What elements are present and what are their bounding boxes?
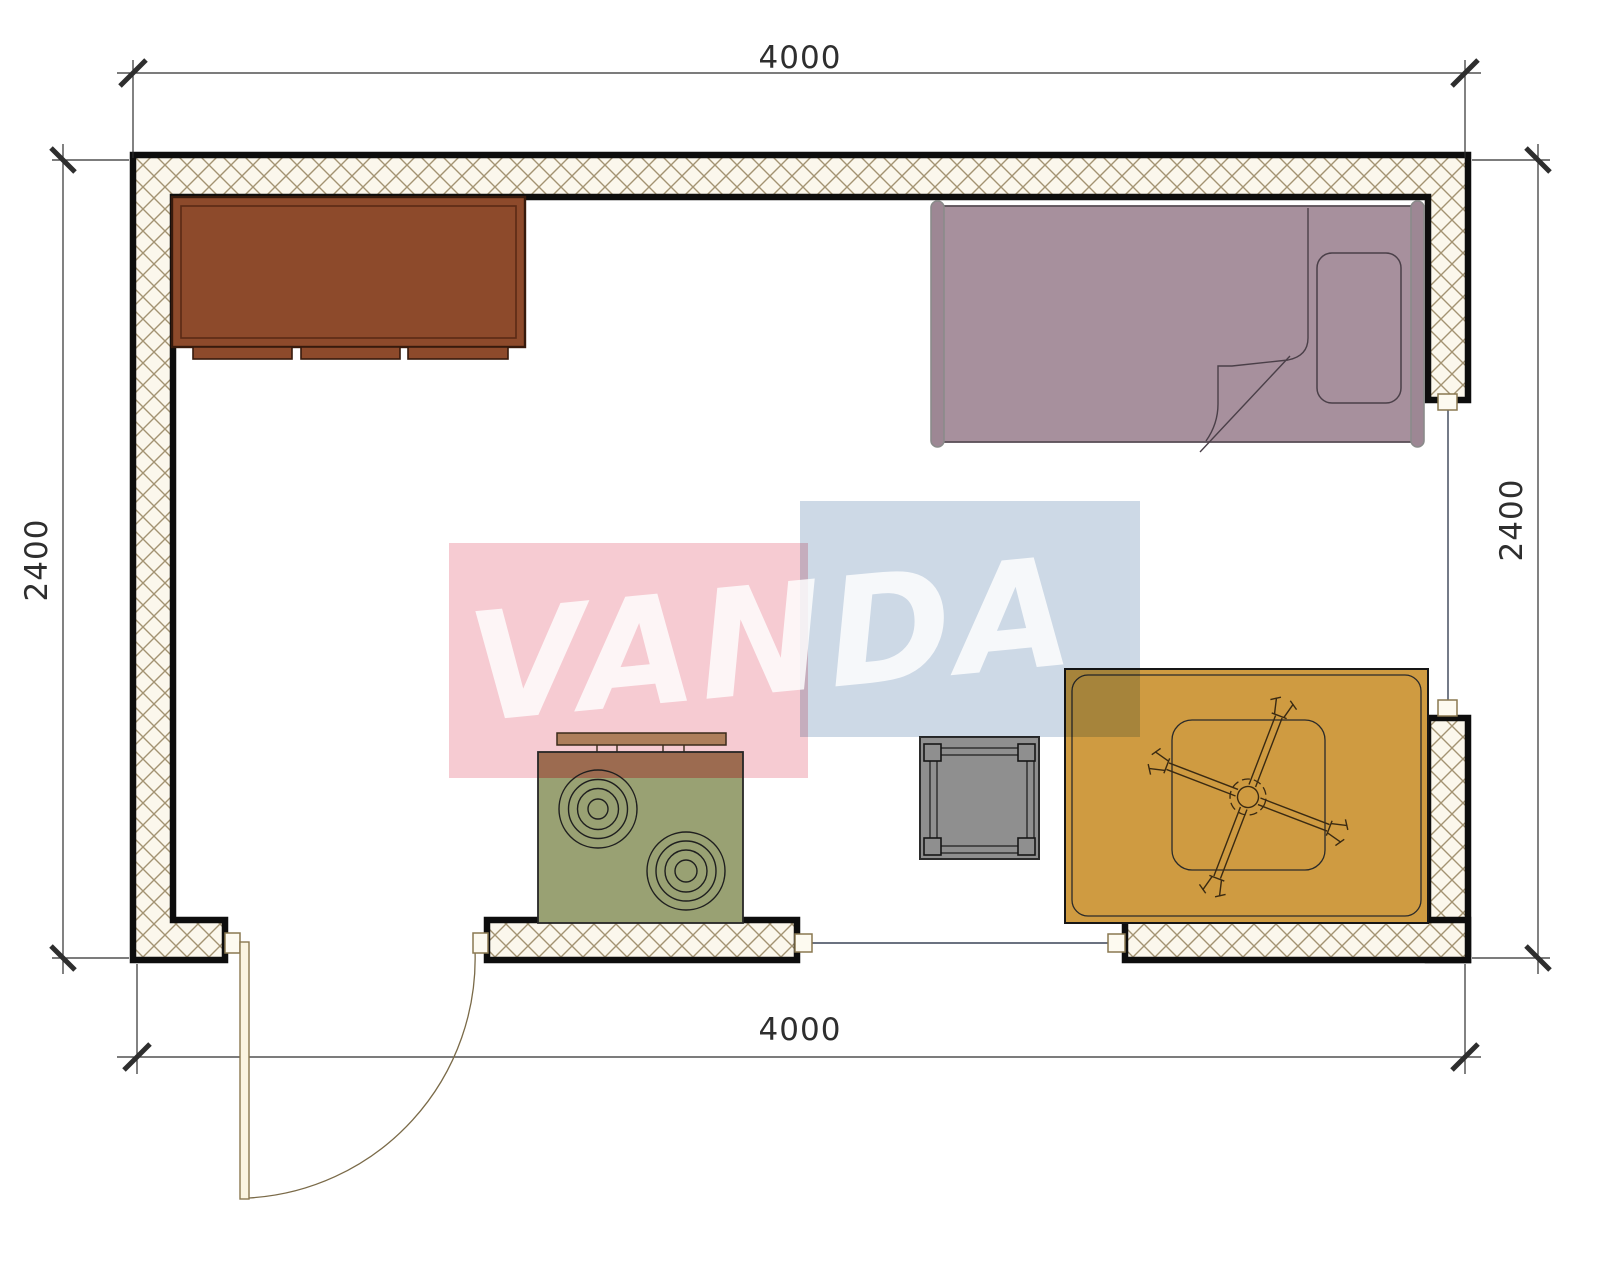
stove-control-band	[538, 752, 743, 778]
dimension-right: 2400	[1472, 144, 1550, 974]
bed-post-left	[931, 201, 944, 447]
door	[225, 933, 488, 1199]
bed-post-right	[1411, 201, 1424, 447]
door-frame-jamb	[225, 933, 240, 953]
wardrobe-door-tab	[301, 347, 400, 359]
wardrobe	[172, 197, 525, 359]
dim-label-top: 4000	[759, 40, 842, 76]
side-table	[920, 737, 1039, 859]
dim-label-left: 2400	[19, 519, 55, 602]
door-frame-jamb	[473, 933, 488, 953]
window-bottom	[795, 934, 1125, 952]
wall-bottom-center	[487, 920, 797, 960]
dimension-bottom: 4000	[117, 964, 1481, 1074]
door-swing-arc	[249, 950, 475, 1198]
wardrobe-body	[172, 197, 525, 347]
wardrobe-door-tab	[193, 347, 292, 359]
window-right	[1438, 394, 1457, 716]
dimension-top: 4000	[117, 40, 1481, 158]
window-frame-cap	[1438, 700, 1457, 716]
side-table-leg	[1018, 744, 1035, 761]
bed-pillow	[1317, 253, 1401, 403]
dim-label-right: 2400	[1494, 479, 1530, 562]
side-table-leg	[924, 838, 941, 855]
window-frame-cap	[1108, 934, 1125, 952]
window-frame-cap	[795, 934, 812, 952]
door-leaf	[240, 942, 249, 1199]
dim-label-bottom: 4000	[759, 1012, 842, 1048]
bed	[931, 201, 1424, 452]
watermark: VANDA	[449, 501, 1140, 778]
floor-plan-drawing: 4000 4000 2400 2400	[0, 0, 1600, 1280]
wall-bottom-right	[1125, 920, 1468, 960]
floor-plan-page: 4000 4000 2400 2400	[0, 0, 1600, 1280]
window-frame-cap	[1438, 394, 1457, 410]
side-table-leg	[924, 744, 941, 761]
stove-shelf	[557, 733, 726, 745]
dimension-left: 2400	[19, 144, 129, 974]
stove	[538, 733, 743, 923]
side-table-leg	[1018, 838, 1035, 855]
wardrobe-door-tab	[408, 347, 508, 359]
